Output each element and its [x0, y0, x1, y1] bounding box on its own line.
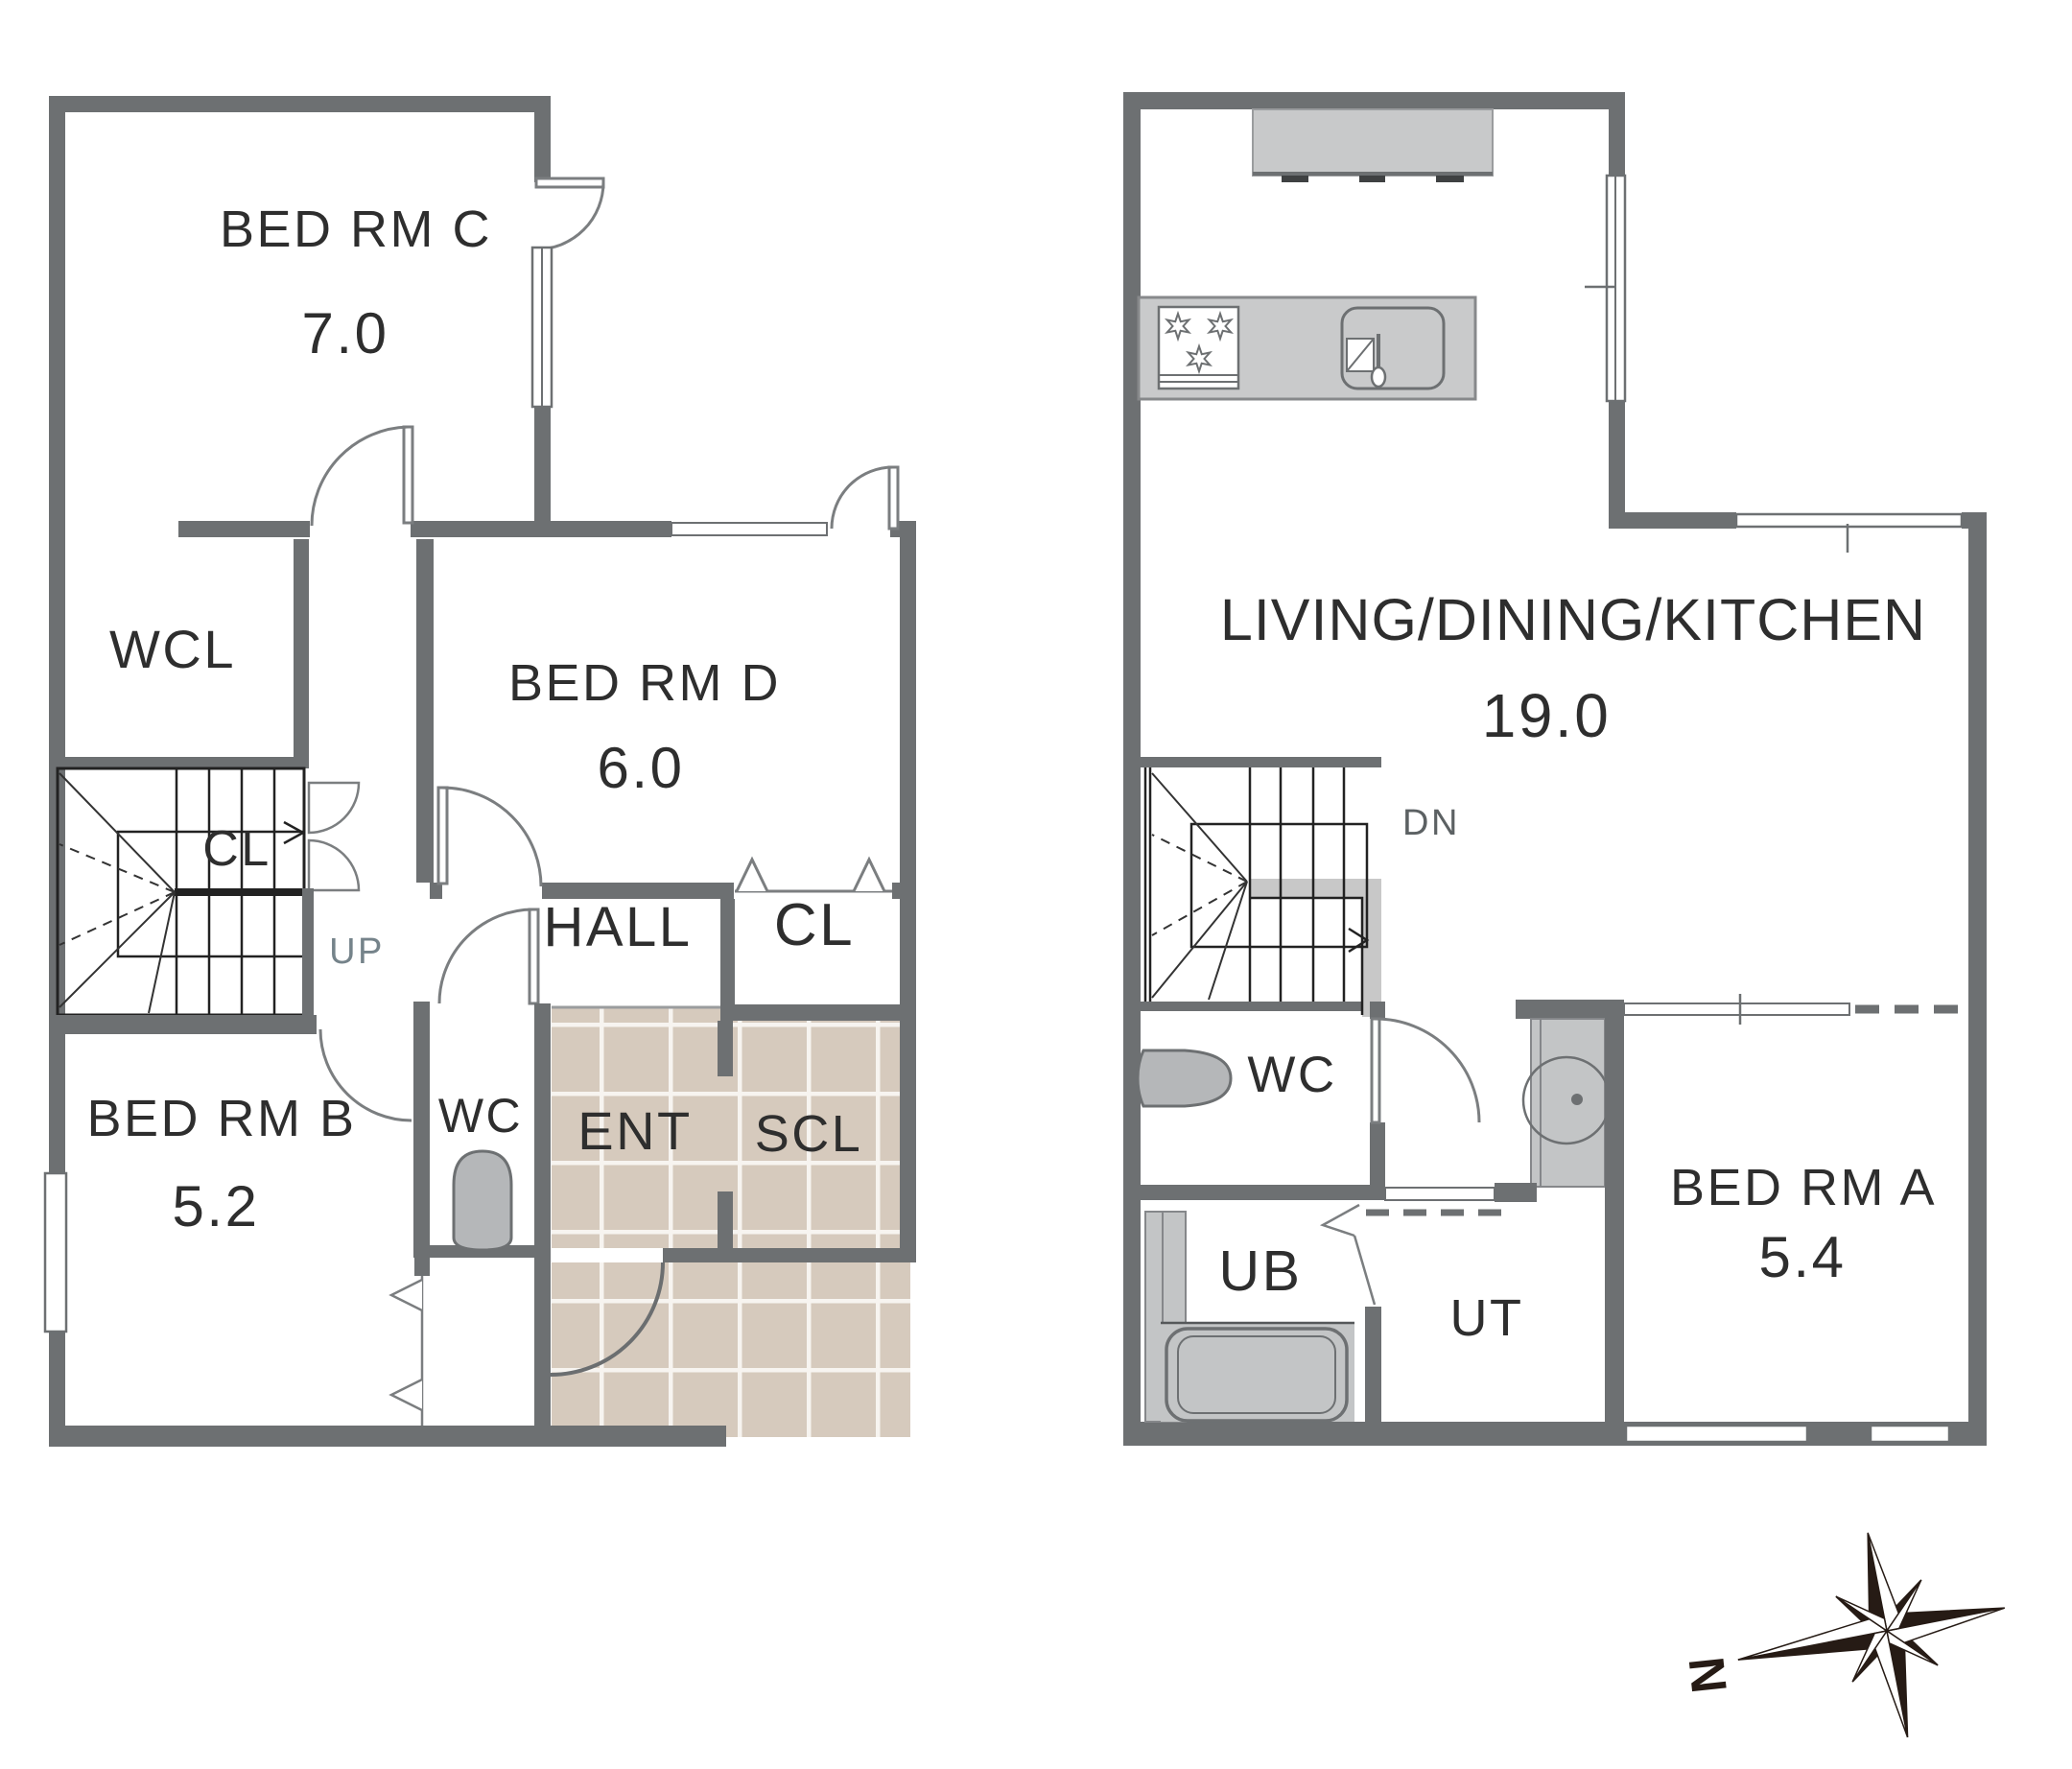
svg-text:5.4: 5.4: [1759, 1225, 1847, 1289]
svg-text:BED RM B: BED RM B: [86, 1090, 356, 1147]
svg-text:UT: UT: [1450, 1289, 1524, 1347]
svg-text:BED RM A: BED RM A: [1670, 1159, 1937, 1216]
svg-text:BED RM D: BED RM D: [508, 654, 781, 712]
svg-text:DN: DN: [1402, 803, 1460, 843]
svg-text:CL: CL: [774, 892, 855, 958]
svg-text:5.2: 5.2: [173, 1174, 260, 1238]
svg-text:ENT: ENT: [577, 1100, 693, 1161]
svg-text:7.0: 7.0: [302, 301, 389, 366]
svg-text:UB: UB: [1219, 1239, 1303, 1303]
svg-text:HALL: HALL: [543, 896, 692, 958]
svg-text:BED RM C: BED RM C: [220, 200, 492, 258]
svg-text:WC: WC: [1247, 1047, 1336, 1103]
svg-text:CL: CL: [202, 821, 271, 877]
svg-text:WCL: WCL: [109, 619, 236, 679]
svg-text:SCL: SCL: [755, 1105, 863, 1163]
svg-text:N: N: [1679, 1654, 1738, 1695]
svg-text:UP: UP: [329, 932, 385, 972]
svg-text:WC: WC: [438, 1089, 523, 1143]
svg-text:6.0: 6.0: [598, 736, 685, 800]
svg-text:19.0: 19.0: [1482, 681, 1612, 750]
svg-text:LIVING/DINING/KITCHEN: LIVING/DINING/KITCHEN: [1220, 587, 1926, 652]
